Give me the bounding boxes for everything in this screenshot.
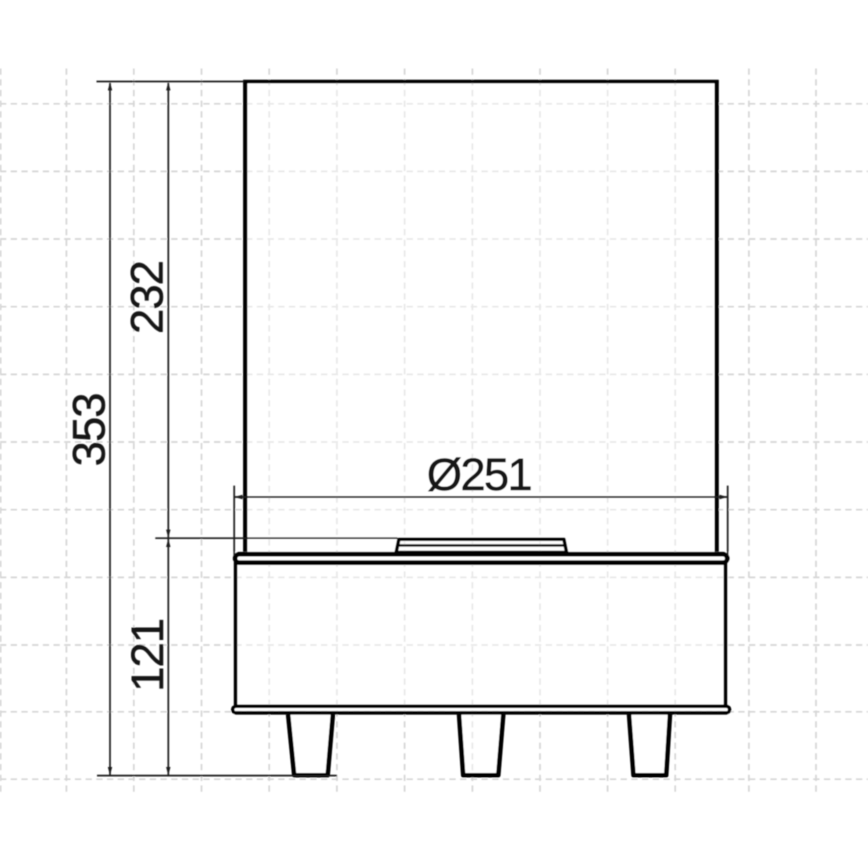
svg-text:232: 232 [122, 261, 173, 334]
svg-text:353: 353 [63, 393, 114, 466]
svg-text:121: 121 [122, 619, 173, 692]
svg-text:Ø251: Ø251 [427, 449, 532, 500]
